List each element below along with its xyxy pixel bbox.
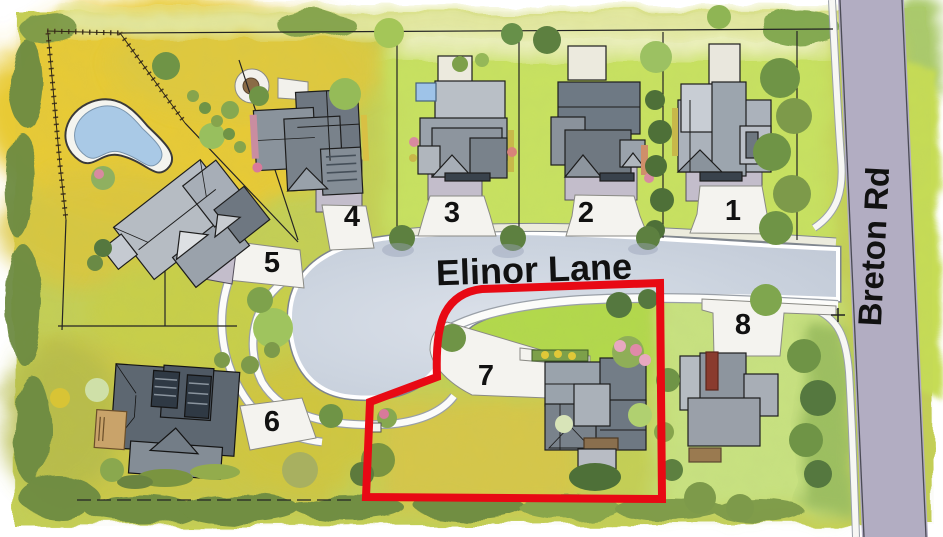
svg-text:4: 4 xyxy=(344,201,360,233)
svg-text:6: 6 xyxy=(264,406,280,438)
svg-text:8: 8 xyxy=(735,309,751,341)
svg-text:Elinor Lane: Elinor Lane xyxy=(435,246,632,294)
svg-text:5: 5 xyxy=(264,247,280,279)
svg-text:7: 7 xyxy=(478,360,494,392)
svg-text:1: 1 xyxy=(725,195,741,227)
svg-text:2: 2 xyxy=(578,197,594,229)
svg-text:3: 3 xyxy=(444,197,460,229)
